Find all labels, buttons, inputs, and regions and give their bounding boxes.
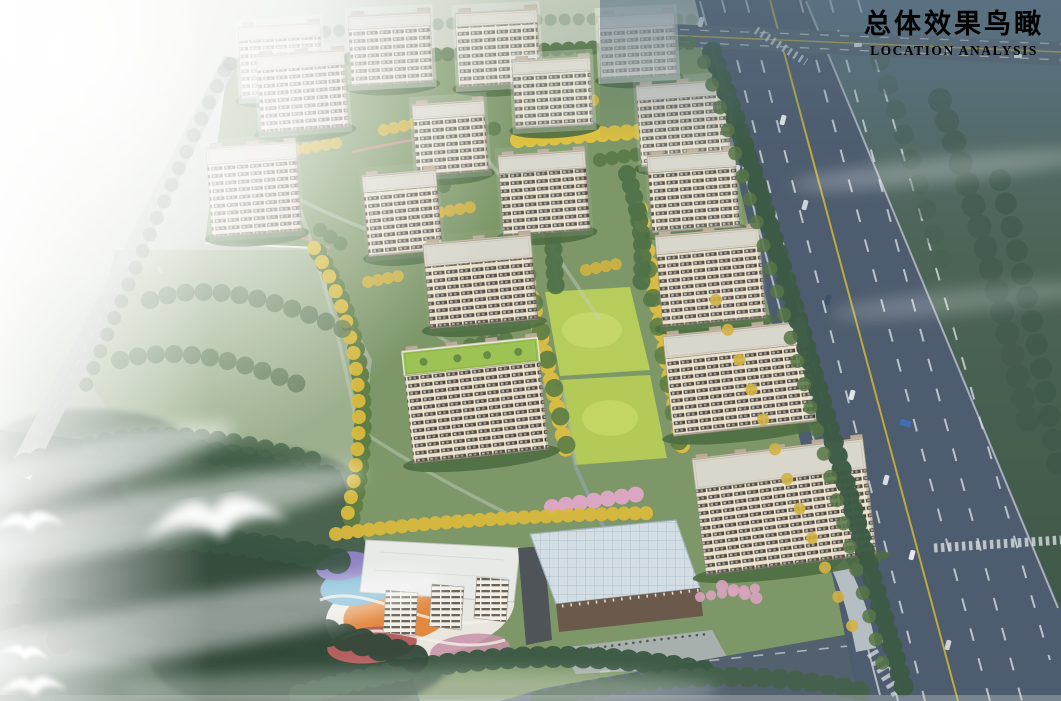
distance-haze bbox=[651, 219, 770, 332]
rendering-canvas bbox=[0, 0, 1061, 701]
left-mist bbox=[0, 0, 210, 701]
residential-tower bbox=[646, 218, 776, 339]
classroom-wing bbox=[474, 577, 509, 622]
aerial-rendering: 总体效果鸟瞰 LOCATION ANALYSIS bbox=[0, 0, 1061, 701]
title-block: 总体效果鸟瞰 LOCATION ANALYSIS bbox=[850, 10, 1058, 59]
page-subtitle: LOCATION ANALYSIS bbox=[850, 43, 1058, 59]
bottom-edge-band bbox=[0, 695, 1061, 701]
page-title: 总体效果鸟瞰 bbox=[850, 10, 1058, 40]
lawn-highlight bbox=[582, 400, 638, 436]
